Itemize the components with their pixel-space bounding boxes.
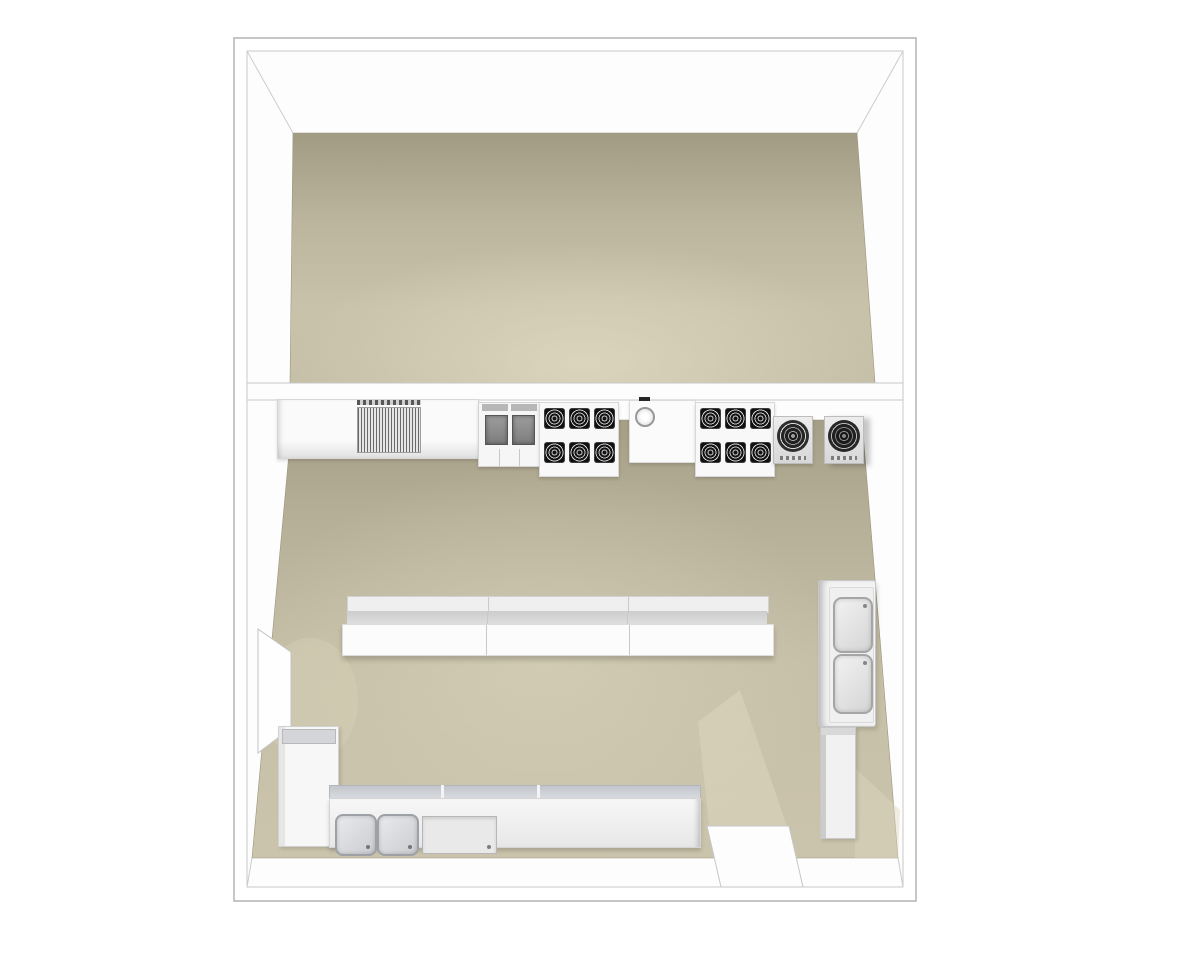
charbroiler-grate <box>357 407 421 453</box>
burner-icon <box>750 408 771 429</box>
fryer-backshelf-right <box>511 404 537 411</box>
faucet-icon <box>639 397 650 401</box>
burner-icon <box>725 408 746 429</box>
sink-basin-bottom <box>833 654 873 714</box>
island-seam <box>627 611 628 624</box>
wok-burner-icon <box>828 420 860 452</box>
burner-icon <box>544 408 565 429</box>
island-seam <box>629 625 630 655</box>
upper-room-floor-highlight <box>290 133 875 383</box>
counter-front-face <box>329 798 701 848</box>
fryer-backshelf-left <box>482 404 508 411</box>
burner-icon <box>700 408 721 429</box>
soak-sink <box>422 816 497 854</box>
counter-end-cap <box>282 729 336 744</box>
fryer-door-seam <box>499 449 500 467</box>
lowboy-cabinet <box>820 727 856 839</box>
three-section-prep-island <box>342 596 772 656</box>
hand-sink-prep-table <box>629 400 696 463</box>
six-burner-range-left <box>539 402 619 477</box>
six-burner-range-right <box>695 402 775 477</box>
stock-pot-burner-right <box>824 416 864 464</box>
wall-counter <box>277 399 479 459</box>
sink-basin-top <box>833 597 873 653</box>
island-seam <box>628 597 629 612</box>
burner-controls <box>831 456 857 460</box>
hand-sink-basin <box>635 407 655 427</box>
divider-wall <box>247 383 903 400</box>
two-basin-tall-sink-unit <box>818 580 876 727</box>
bottom-doorway-threshold <box>707 826 803 887</box>
island-seam <box>486 625 487 655</box>
compartment-sink-left <box>335 814 377 856</box>
burner-icon <box>544 442 565 463</box>
burner-icon <box>569 442 590 463</box>
burner-icon <box>594 408 615 429</box>
burner-icon <box>569 408 590 429</box>
burner-icon <box>700 442 721 463</box>
burner-controls <box>780 456 806 460</box>
double-basket-fryer <box>478 402 540 467</box>
compartment-sink-right <box>377 814 419 856</box>
island-seam <box>487 611 488 624</box>
stock-pot-burner-left <box>773 416 813 464</box>
island-front-face <box>342 624 774 656</box>
floorplan-scene <box>0 0 1200 953</box>
island-worktop <box>347 611 767 624</box>
burner-icon <box>750 442 771 463</box>
fryer-vat-right <box>512 415 535 445</box>
l-counter-main-run <box>329 785 699 846</box>
fryer-vat-left <box>485 415 508 445</box>
cabinet-top-cap <box>821 728 855 735</box>
island-seam <box>488 597 489 612</box>
burner-icon <box>725 442 746 463</box>
wok-burner-icon <box>777 420 809 452</box>
fryer-door-seam <box>519 449 520 467</box>
burner-icon <box>594 442 615 463</box>
charbroiler-control-strip <box>357 400 421 405</box>
